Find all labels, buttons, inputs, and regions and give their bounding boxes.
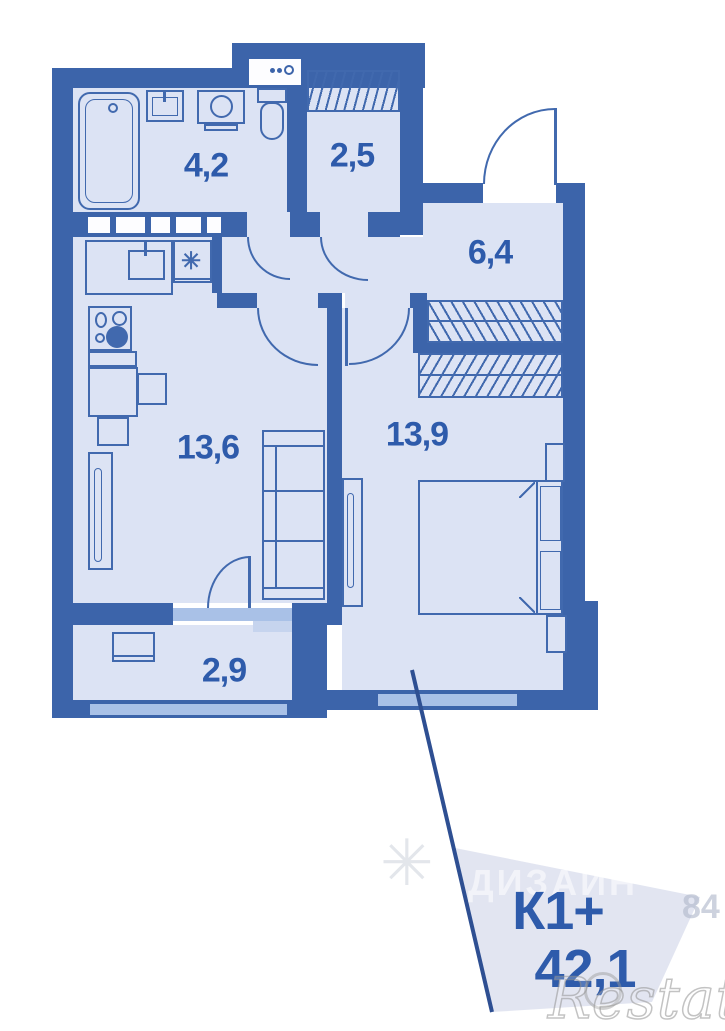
- wall-kitchen-niche: [212, 237, 222, 293]
- bedroom-door-leaf: [345, 308, 348, 366]
- bathtub-inner: [85, 99, 133, 203]
- entrance-door-opening: [483, 183, 556, 203]
- kitchen-low-box: [97, 417, 129, 446]
- wall-closet-right: [400, 88, 423, 235]
- bed-pillow: [540, 486, 561, 541]
- entrance-door-arc: [483, 108, 555, 184]
- nightstand: [546, 615, 567, 653]
- kitchen-faucet: [144, 242, 147, 256]
- balcony-window-sill: [253, 621, 292, 632]
- vent-duct-cell: [116, 217, 145, 233]
- ghost-logo-icon: ✳: [380, 826, 434, 901]
- balcony-table-line: [114, 655, 153, 657]
- bed-pillow: [540, 551, 561, 610]
- bathroom-sink-faucet: [163, 90, 166, 102]
- unit-type-label: К1+: [512, 880, 604, 942]
- balcony-table: [112, 632, 155, 662]
- kitchen-counter: [88, 351, 137, 367]
- balcony-outer-window: [90, 704, 287, 715]
- hook-ring-icon: [284, 65, 294, 75]
- bedroom-door-opening: [345, 293, 410, 308]
- wall-living-bedroom: [327, 293, 342, 625]
- wall-hall-bedroom: [427, 343, 563, 353]
- closet-area-label: 2,5: [330, 137, 374, 176]
- balcony-floor: [73, 625, 292, 700]
- entrance-door-leaf: [554, 108, 557, 185]
- washing-machine-door: [210, 95, 233, 118]
- balcony-door-leaf: [248, 556, 251, 608]
- sofa-armrest-line: [264, 587, 323, 589]
- wall-beddoor-stub: [410, 293, 427, 308]
- wall-balcony-step: [292, 603, 342, 625]
- blanket-fold: [519, 482, 535, 498]
- hook-dot-icon: [270, 68, 275, 73]
- stove-burner: [95, 312, 107, 328]
- vent-duct-cell: [207, 217, 221, 233]
- bathtub-drain-icon: [108, 103, 118, 113]
- hallway-area-label: 6,4: [468, 234, 512, 273]
- hook-dot-icon: [277, 68, 282, 73]
- nightstand: [545, 443, 565, 482]
- kitchen-side-box: [137, 373, 167, 405]
- bedroom-wardrobe-midline: [418, 374, 563, 376]
- bedroom-cabinet-door: [347, 493, 354, 588]
- vent-duct-cell: [88, 217, 110, 233]
- washing-machine-base: [204, 124, 238, 131]
- wall-corr-top-a: [232, 212, 247, 237]
- bedroom-alcove-floor: [342, 625, 378, 690]
- living-area-label: 13,6: [177, 429, 239, 468]
- kitchen-cabinet: [88, 367, 138, 417]
- sofa-cushion-line: [264, 490, 323, 492]
- wall-corr-top-b: [290, 212, 320, 237]
- sofa-back-line: [275, 445, 277, 589]
- bathroom-door-opening: [247, 212, 290, 237]
- toilet-tank: [257, 88, 287, 103]
- sofa-cushion-line: [264, 540, 323, 542]
- sofa-icon: [262, 430, 325, 600]
- wall-living-balcony: [73, 603, 173, 625]
- stove-burner: [95, 333, 105, 343]
- closet-wardrobe-hatch: [307, 70, 400, 112]
- ghost-watermark-number: 84: [682, 888, 720, 927]
- wall-corr-bottom-a: [217, 293, 257, 308]
- wall-corr-top-c: [368, 212, 400, 237]
- wall-wardrobe-stub: [413, 308, 427, 353]
- vent-unit-line: [173, 278, 212, 280]
- vent-duct-cell: [176, 217, 201, 233]
- tall-cabinet-door: [94, 468, 102, 562]
- wall-entry-left: [423, 183, 483, 203]
- hallway-wardrobe-midline: [427, 320, 563, 322]
- toilet-icon: [260, 102, 284, 140]
- wall-right-thick: [585, 601, 598, 710]
- balcony-glazing-window: [173, 608, 292, 621]
- brand-watermark: Restate: [548, 966, 725, 1031]
- bed-headboard-line: [536, 480, 538, 615]
- sofa-armrest-line: [264, 445, 323, 447]
- closet-door-opening: [320, 212, 368, 237]
- ventilation-symbol-icon: ✳: [181, 247, 201, 276]
- floor-plan: ✳ 4,2 2,5 6,4 13,6 13,9 2,9 ДИЗАЙН 84 ✳ …: [0, 0, 725, 1031]
- wall-top-bath: [52, 68, 232, 88]
- stove-burner-active: [106, 326, 128, 348]
- bathroom-area-label: 4,2: [184, 147, 228, 186]
- wall-left: [52, 68, 73, 718]
- bedroom-window: [378, 694, 517, 706]
- bedroom-area-label: 13,9: [386, 416, 448, 455]
- stove-burner: [112, 311, 127, 326]
- balcony-area-label: 2,9: [202, 652, 246, 691]
- vent-duct-cell: [151, 217, 170, 233]
- blanket-fold: [519, 597, 535, 613]
- living-door-opening: [257, 293, 318, 308]
